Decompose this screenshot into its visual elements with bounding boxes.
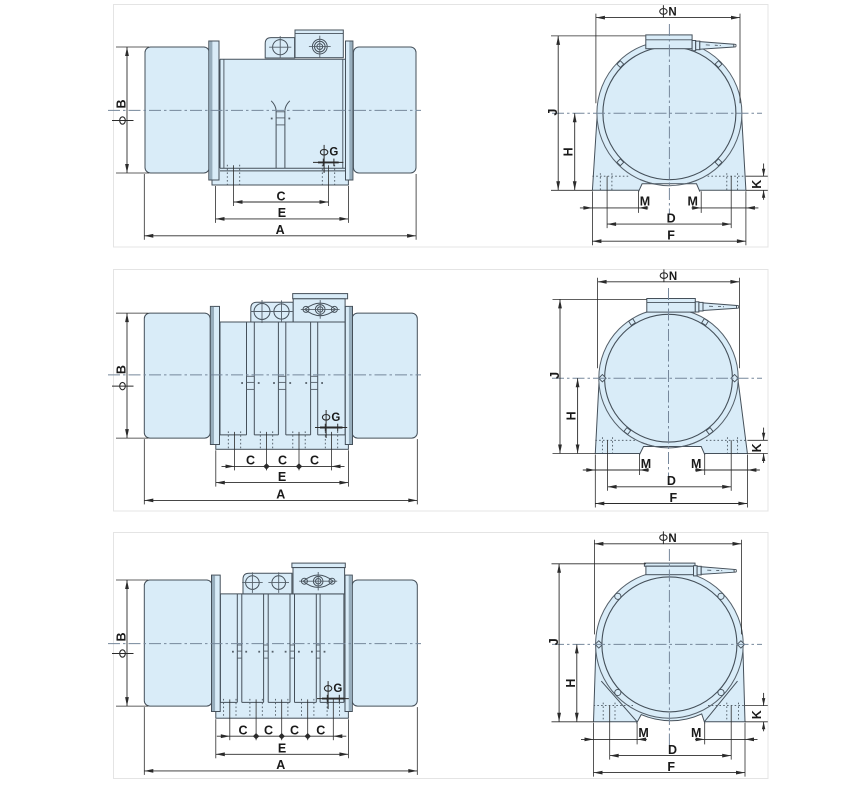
svg-text:J: J [547, 638, 561, 645]
svg-text:M: M [687, 195, 697, 209]
svg-text:B: B [115, 632, 129, 641]
svg-text:C: C [310, 454, 319, 468]
svg-text:M: M [638, 726, 648, 740]
svg-text:E: E [278, 206, 286, 220]
svg-text:B: B [115, 365, 129, 374]
svg-text:C: C [238, 724, 247, 738]
svg-text:E: E [278, 470, 286, 484]
svg-text:J: J [546, 109, 560, 116]
svg-text:A: A [276, 223, 285, 237]
svg-text:M: M [641, 457, 651, 471]
svg-text:C: C [246, 454, 255, 468]
svg-text:F: F [667, 760, 675, 774]
svg-text:J: J [548, 372, 562, 379]
svg-text:A: A [276, 758, 285, 772]
svg-text:D: D [667, 211, 676, 225]
svg-text:G: G [331, 412, 340, 424]
svg-text:N: N [668, 533, 676, 545]
svg-text:K: K [750, 443, 764, 452]
svg-text:C: C [290, 724, 299, 738]
svg-text:H: H [562, 147, 576, 156]
svg-text:G: G [333, 683, 342, 695]
svg-text:G: G [329, 147, 338, 159]
svg-text:H: H [564, 679, 578, 688]
svg-text:E: E [278, 742, 286, 756]
svg-text:C: C [316, 724, 325, 738]
svg-text:D: D [667, 474, 676, 488]
svg-text:K: K [750, 180, 764, 189]
svg-text:C: C [278, 454, 287, 468]
svg-text:F: F [667, 229, 675, 243]
svg-text:N: N [668, 7, 676, 19]
svg-text:A: A [276, 488, 285, 502]
svg-text:M: M [691, 457, 701, 471]
svg-text:H: H [565, 411, 579, 420]
svg-text:N: N [669, 271, 677, 283]
svg-text:M: M [691, 726, 701, 740]
svg-text:F: F [669, 491, 677, 505]
svg-text:K: K [750, 710, 764, 719]
svg-text:C: C [264, 724, 273, 738]
svg-text:C: C [276, 189, 285, 203]
svg-text:B: B [115, 99, 129, 108]
svg-text:M: M [640, 195, 650, 209]
svg-text:D: D [668, 743, 677, 757]
